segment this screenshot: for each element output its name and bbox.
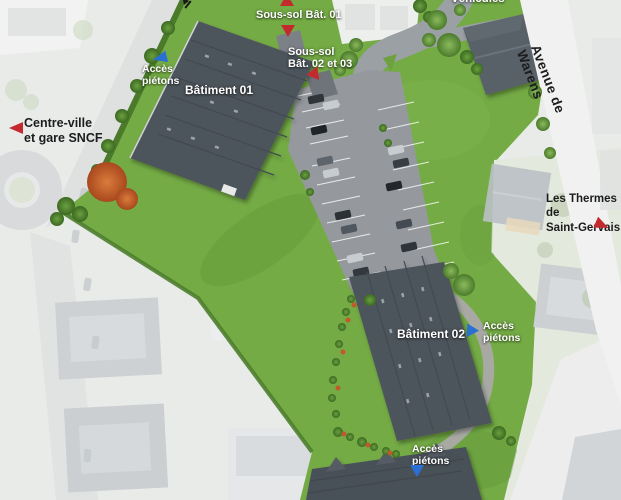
site-plan-map: Véhicules Sous-sol Bât. 01 Sous-sol Bât.… bbox=[0, 0, 621, 500]
